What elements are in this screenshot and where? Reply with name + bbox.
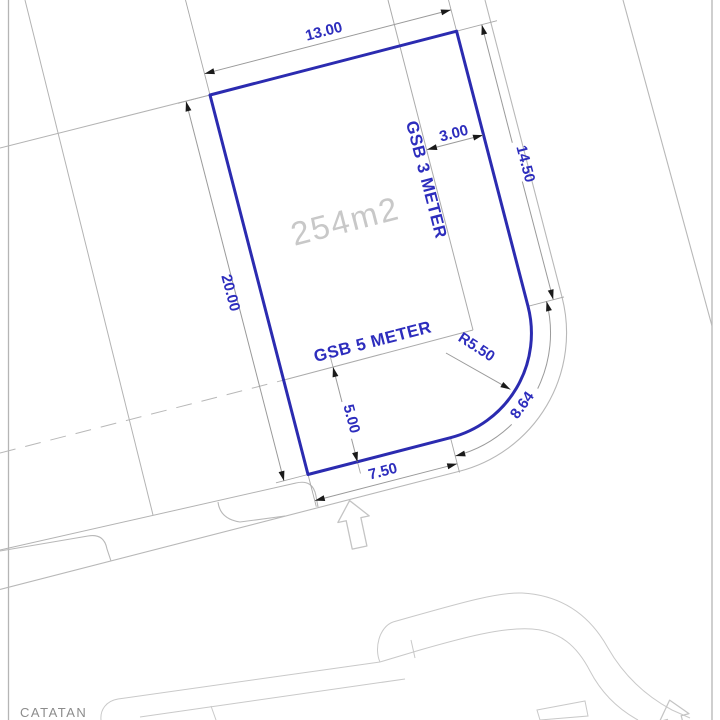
curb-corner-hook	[296, 482, 318, 507]
setback-dashed-extension	[0, 380, 284, 453]
dimension-setback-bottom: 5.00	[333, 367, 363, 462]
dimension-setback-bottom-value: 5.00	[339, 403, 363, 436]
opposite-block-top-line	[118, 662, 380, 699]
dimension-setback-right-value: 3.00	[438, 122, 471, 146]
entrance-arrow-icon	[334, 497, 375, 551]
road-far-edge-line	[623, 0, 712, 326]
road-curve-inner	[380, 629, 638, 720]
notes-title: CATATAN	[20, 705, 87, 720]
dimension-right-value: 14.50	[512, 144, 538, 185]
opposite-block-building	[537, 701, 588, 720]
dimension-setback-right: 3.00	[427, 122, 483, 150]
dimension-left: 20.00	[186, 101, 284, 481]
opposite-block-division-line	[211, 706, 216, 720]
extension-lines	[178, 0, 564, 507]
neighbor-boundary-line	[25, 0, 153, 515]
curb-cut-left	[0, 536, 111, 561]
site-plan-drawing: 13.00 14.50 20.00 7.50 3.00 5.00 8.64 R5…	[0, 0, 720, 720]
plot-area-label: 254m2	[287, 189, 404, 253]
dimension-top-value: 13.00	[304, 19, 345, 45]
road-curve-end-cap	[378, 622, 393, 662]
opposite-block-tick	[411, 640, 415, 658]
entrance-arrow-icon-secondary	[655, 696, 696, 720]
radius-leader: R5.50	[446, 329, 511, 389]
road-curve-outer	[393, 593, 690, 718]
opposite-block-lower-line	[140, 679, 405, 717]
dimension-arc-length: 8.64	[455, 301, 550, 456]
opposite-block-end-cap	[101, 699, 118, 720]
radius-value: R5.50	[455, 329, 498, 365]
road-curb-line	[0, 0, 567, 590]
site-plan-svg: 13.00 14.50 20.00 7.50 3.00 5.00 8.64 R5…	[0, 0, 720, 720]
setback-label-bottom: GSB 5 METER	[312, 317, 434, 366]
plot-boundary	[210, 31, 531, 474]
dimension-right: 14.50	[482, 25, 553, 300]
dimension-left-value: 20.00	[217, 273, 243, 314]
